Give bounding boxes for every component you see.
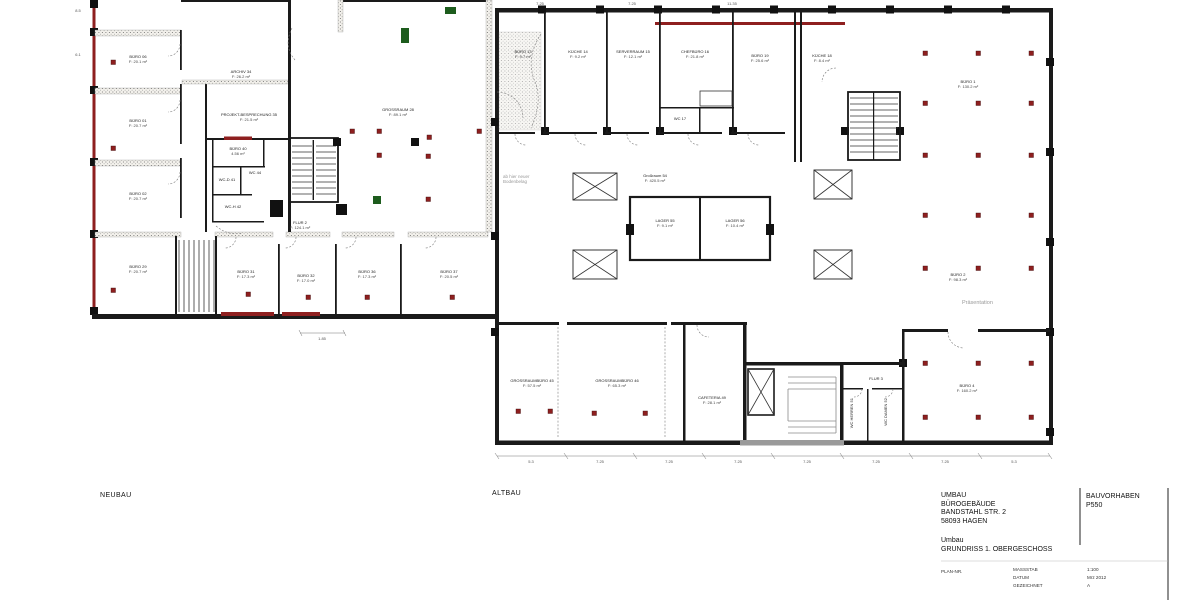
elevator-shaft (748, 369, 774, 415)
red-demolition-line (655, 22, 845, 25)
room-area: F: 21.8 m² (681, 55, 709, 60)
dimension-value: 7.25 (872, 459, 880, 464)
room-label: LAGER 56F: 10.4 m² (725, 219, 744, 229)
room-area: F: 20.7 m² (129, 197, 147, 202)
room-area: F: 130.2 m² (958, 85, 978, 90)
room-name: WC-H 42 (225, 205, 241, 210)
massstab-value: 1:100 (1087, 566, 1106, 574)
room-label: GROSSRAUM 28F: 89.1 m² (382, 108, 414, 118)
shaft (270, 200, 283, 217)
staircase-altbau-top (848, 92, 900, 160)
room-area: F: 17.3 m² (358, 275, 376, 280)
room-label: FLUR 3 (869, 377, 883, 382)
dimension-value: 7.25 (536, 1, 544, 6)
room-name: FLUR 3 (869, 377, 883, 382)
section-label-altbau: ALTBAU (492, 490, 521, 497)
dimension-value: 7.25 (941, 459, 949, 464)
section-label-neubau: NEUBAU (100, 492, 132, 499)
staircase-bottom (179, 240, 214, 312)
room-label: FLUR 2F: 124.1 m² (290, 221, 310, 231)
room-area: F: 26.2 m² (231, 75, 252, 80)
staircase-mid (290, 138, 338, 202)
room-label: ARCHIV 34F: 26.2 m² (231, 70, 252, 80)
room-label: WC 44 (249, 171, 261, 176)
room-label: BÜRO 404.56 m² (229, 147, 246, 157)
room-area: F: 12.1 m² (616, 55, 650, 60)
floor-note: ab hier neuer Bodenbelag (503, 174, 530, 185)
bauvorhaben-value: P550 (1086, 501, 1140, 510)
room-label: KÜCHE 14F: 9.2 m² (568, 50, 588, 60)
green-mark (373, 196, 381, 204)
core-lager (626, 197, 774, 260)
title-block-field-values: 1:100 Mrz 2012 A (1087, 566, 1106, 590)
room-label: Großraum 54F: 420.5 m² (643, 174, 667, 184)
massstab-label: MASSSTAB (1013, 566, 1043, 574)
green-mark (401, 28, 409, 43)
dimension-value: 11.35 (727, 1, 737, 6)
room-area: F: 28.1 m² (698, 401, 726, 406)
dimension-value: 7.25 (628, 1, 636, 6)
bauvorhaben-label: BAUVORHABEN (1086, 492, 1140, 501)
room-area: F: 160.2 m² (957, 389, 977, 394)
room-area: F: 20.1 m² (129, 60, 147, 65)
room-label: BÜRO 19F: 25.6 m² (751, 54, 769, 64)
dimension-value: 7.25 (734, 459, 742, 464)
room-area: 4.56 m² (229, 152, 246, 157)
dimension-value: 6.1 (75, 52, 81, 57)
title-block-field-labels: MASSSTAB DATUM GEZEICHNET (1013, 566, 1043, 590)
room-label: SERVERRAUM 15F: 12.1 m² (616, 50, 650, 60)
staircase-altbau-bottom (788, 377, 836, 433)
room-area: F: 17.3 m² (237, 275, 255, 280)
room-label: BÜRO 13F: 9.7 m² (514, 50, 531, 60)
project-line: UMBAU (941, 492, 1006, 501)
title-block-project: UMBAU BÜROGEBÄUDE BANDSTAHL STR. 2 58093… (941, 492, 1006, 526)
room-area: F: 25.6 m² (751, 59, 769, 64)
room-area: F: 10.4 m² (725, 224, 744, 229)
room-label: GROSSRAUMBÜRO 45F: 57.5 m² (510, 379, 553, 389)
room-label: GROSSRAUMBÜRO 46F: 65.3 m² (595, 379, 638, 389)
room-label: BÜRO 01F: 20.7 m² (129, 119, 147, 129)
room-name: WC 17 (674, 117, 686, 122)
room-area: F: 20.5 m² (440, 275, 458, 280)
plan-nr-label: PLAN-NR. (941, 568, 962, 576)
title-block-drawing-title: Umbau GRUNDRISS 1. OBERGESCHOSS (941, 536, 1052, 554)
room-label: BÜRO 36F: 17.3 m² (358, 270, 376, 280)
plan-nr-field: PLAN-NR. (941, 568, 962, 576)
project-line: BANDSTAHL STR. 2 (941, 509, 1006, 518)
room-area: F: 57.5 m² (510, 384, 553, 389)
room-area: F: 9.7 m² (514, 55, 531, 60)
drawing-title: GRUNDRISS 1. OBERGESCHOSS (941, 545, 1052, 554)
datum-label: DATUM (1013, 574, 1043, 582)
room-label-vertical: WC HERREN 51 (849, 398, 854, 428)
room-label: BÜRO 02F: 20.7 m² (129, 192, 147, 202)
floor-note-line: Bodenbelag (503, 179, 530, 184)
dimension-value: 8.5 (75, 8, 81, 13)
room-area: F: 21.5 m² (221, 118, 277, 123)
room-area: F: 9.2 m² (568, 55, 588, 60)
room-label: WC-H 42 (225, 205, 241, 210)
room-label: PROJEKT-BESPRECHUNG 35F: 21.5 m² (221, 113, 277, 123)
gray-strip (740, 440, 844, 446)
room-label: KÜCHE 18F: 8.4 m² (812, 54, 832, 64)
dimension-value: 1.85 (318, 336, 326, 341)
gezeichnet-value: A (1087, 582, 1106, 590)
room-area: F: 98.3 m² (949, 278, 967, 283)
green-mark (445, 7, 456, 14)
room-label: CAFETERIA 49F: 28.1 m² (698, 396, 726, 406)
room-area: F: 8.4 m² (812, 59, 832, 64)
dimension-value: 5.3 (1011, 459, 1017, 464)
room-label: BÜRO 06F: 20.1 m² (129, 55, 147, 65)
dimension-value: 7.25 (665, 459, 673, 464)
room-area: F: 124.1 m² (290, 226, 310, 231)
room-area: F: 89.1 m² (382, 113, 414, 118)
room-label-vertical: WC DAMEN 52 (883, 398, 888, 426)
room-label: BÜRO 29F: 20.7 m² (129, 265, 147, 275)
title-block-bauvorhaben: BAUVORHABEN P550 (1086, 492, 1140, 510)
project-line: BÜROGEBÄUDE (941, 501, 1006, 510)
room-area: F: 9.1 m² (655, 224, 674, 229)
dimension-value: 7.25 (596, 459, 604, 464)
room-area: F: 20.7 m² (129, 124, 147, 129)
room-label: BÜRO 32F: 17.0 m² (297, 274, 315, 284)
room-label: BÜRO 4F: 160.2 m² (957, 384, 977, 394)
room-name: WC-D 41 (219, 178, 235, 183)
room-area: F: 20.7 m² (129, 270, 147, 275)
floorplan-page: BÜRO 06F: 20.1 m² BÜRO 01F: 20.7 m² BÜRO… (0, 0, 1200, 600)
room-label: BÜRO 31F: 17.3 m² (237, 270, 255, 280)
phase-label: Umbau (941, 536, 1052, 545)
room-label: WC 17 (674, 117, 686, 122)
room-label: CHEFBÜRO 16F: 21.8 m² (681, 50, 709, 60)
room-label: WC-D 41 (219, 178, 235, 183)
dimension-value: 7.25 (803, 459, 811, 464)
floorplan-drawing (0, 0, 1200, 600)
datum-value: Mrz 2012 (1087, 574, 1106, 582)
neubau-plan (90, 0, 497, 336)
room-area: F: 17.0 m² (297, 279, 315, 284)
room-label: BÜRO 1F: 130.2 m² (958, 80, 978, 90)
dimension-value: 5.3 (528, 459, 534, 464)
room-area: F: 420.5 m² (643, 179, 667, 184)
gezeichnet-label: GEZEICHNET (1013, 582, 1043, 590)
room-name: WC 44 (249, 171, 261, 176)
presentation-note: Präsentation (962, 300, 993, 307)
room-area: F: 65.3 m² (595, 384, 638, 389)
room-label: BÜRO 2F: 98.3 m² (949, 273, 967, 283)
project-line: 58093 HAGEN (941, 518, 1006, 527)
workstation-markers-neubau (111, 60, 482, 300)
room-label: BÜRO 37F: 20.5 m² (440, 270, 458, 280)
room-label: LAGER 55F: 9.1 m² (655, 219, 674, 229)
